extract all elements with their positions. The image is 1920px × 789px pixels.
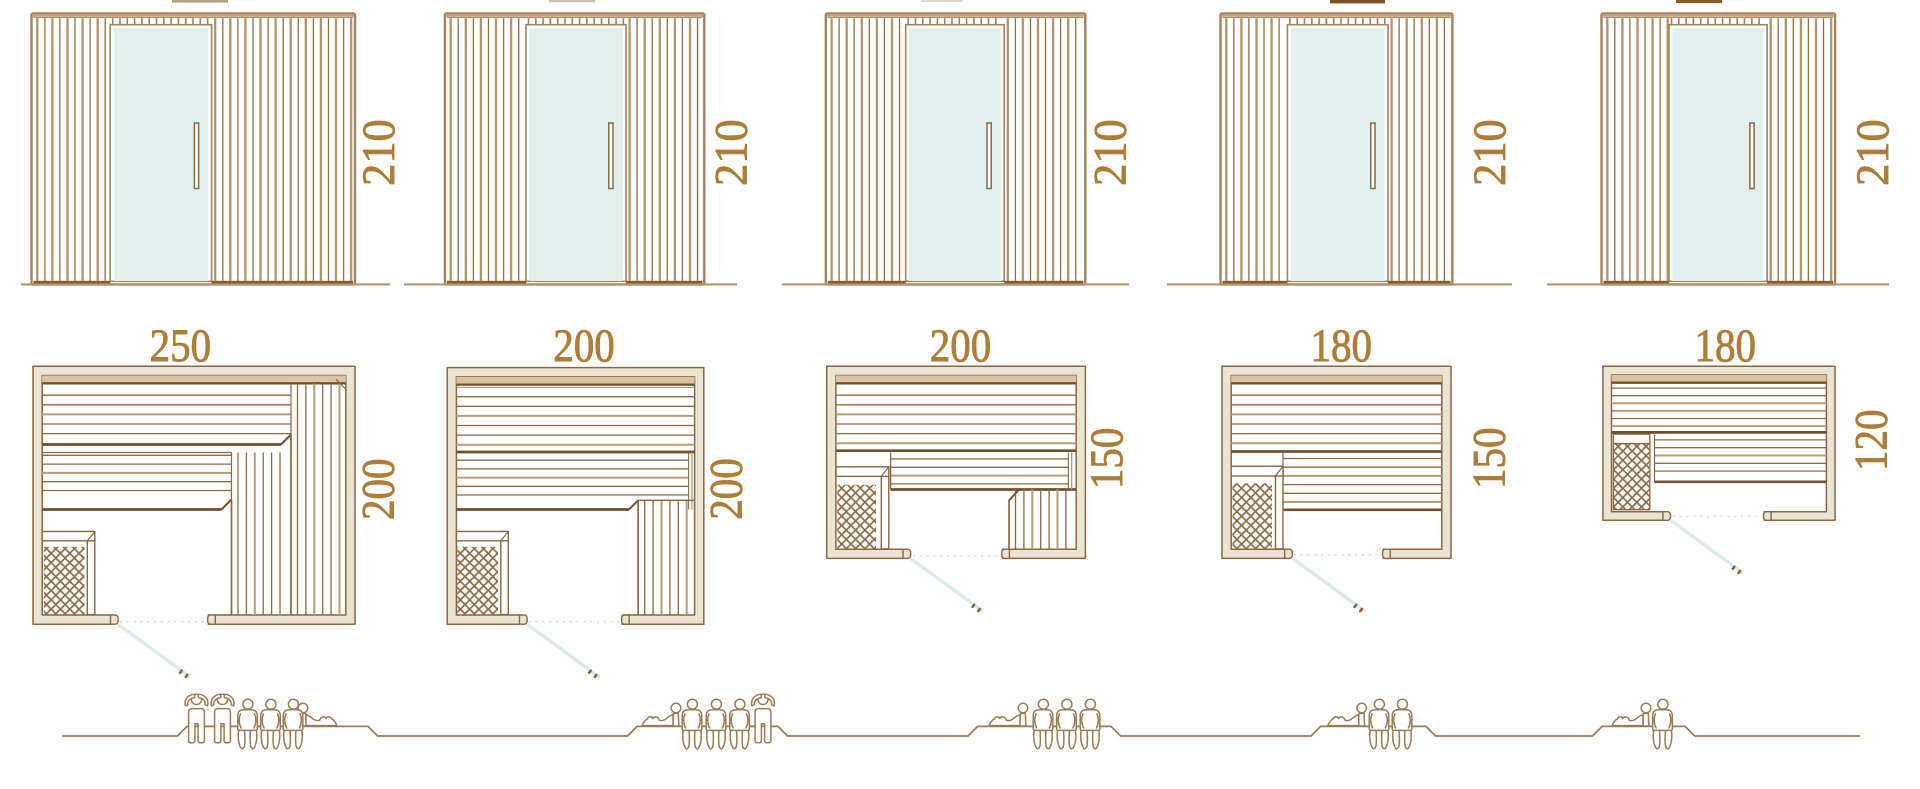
svg-text:120: 120 — [1845, 409, 1897, 471]
svg-text:150: 150 — [1081, 428, 1133, 490]
svg-text:210: 210 — [1464, 119, 1516, 186]
svg-text:200: 200 — [553, 320, 615, 372]
svg-text:180: 180 — [1695, 320, 1757, 372]
svg-text:210: 210 — [705, 119, 757, 186]
svg-text:210: 210 — [1847, 119, 1899, 186]
svg-text:200: 200 — [353, 459, 405, 521]
svg-text:200: 200 — [930, 320, 992, 372]
svg-text:150: 150 — [1464, 427, 1516, 489]
svg-text:210: 210 — [353, 119, 405, 186]
svg-text:200: 200 — [700, 458, 752, 520]
svg-text:180: 180 — [1310, 320, 1372, 372]
svg-text:210: 210 — [1085, 119, 1137, 186]
svg-text:250: 250 — [150, 320, 212, 372]
